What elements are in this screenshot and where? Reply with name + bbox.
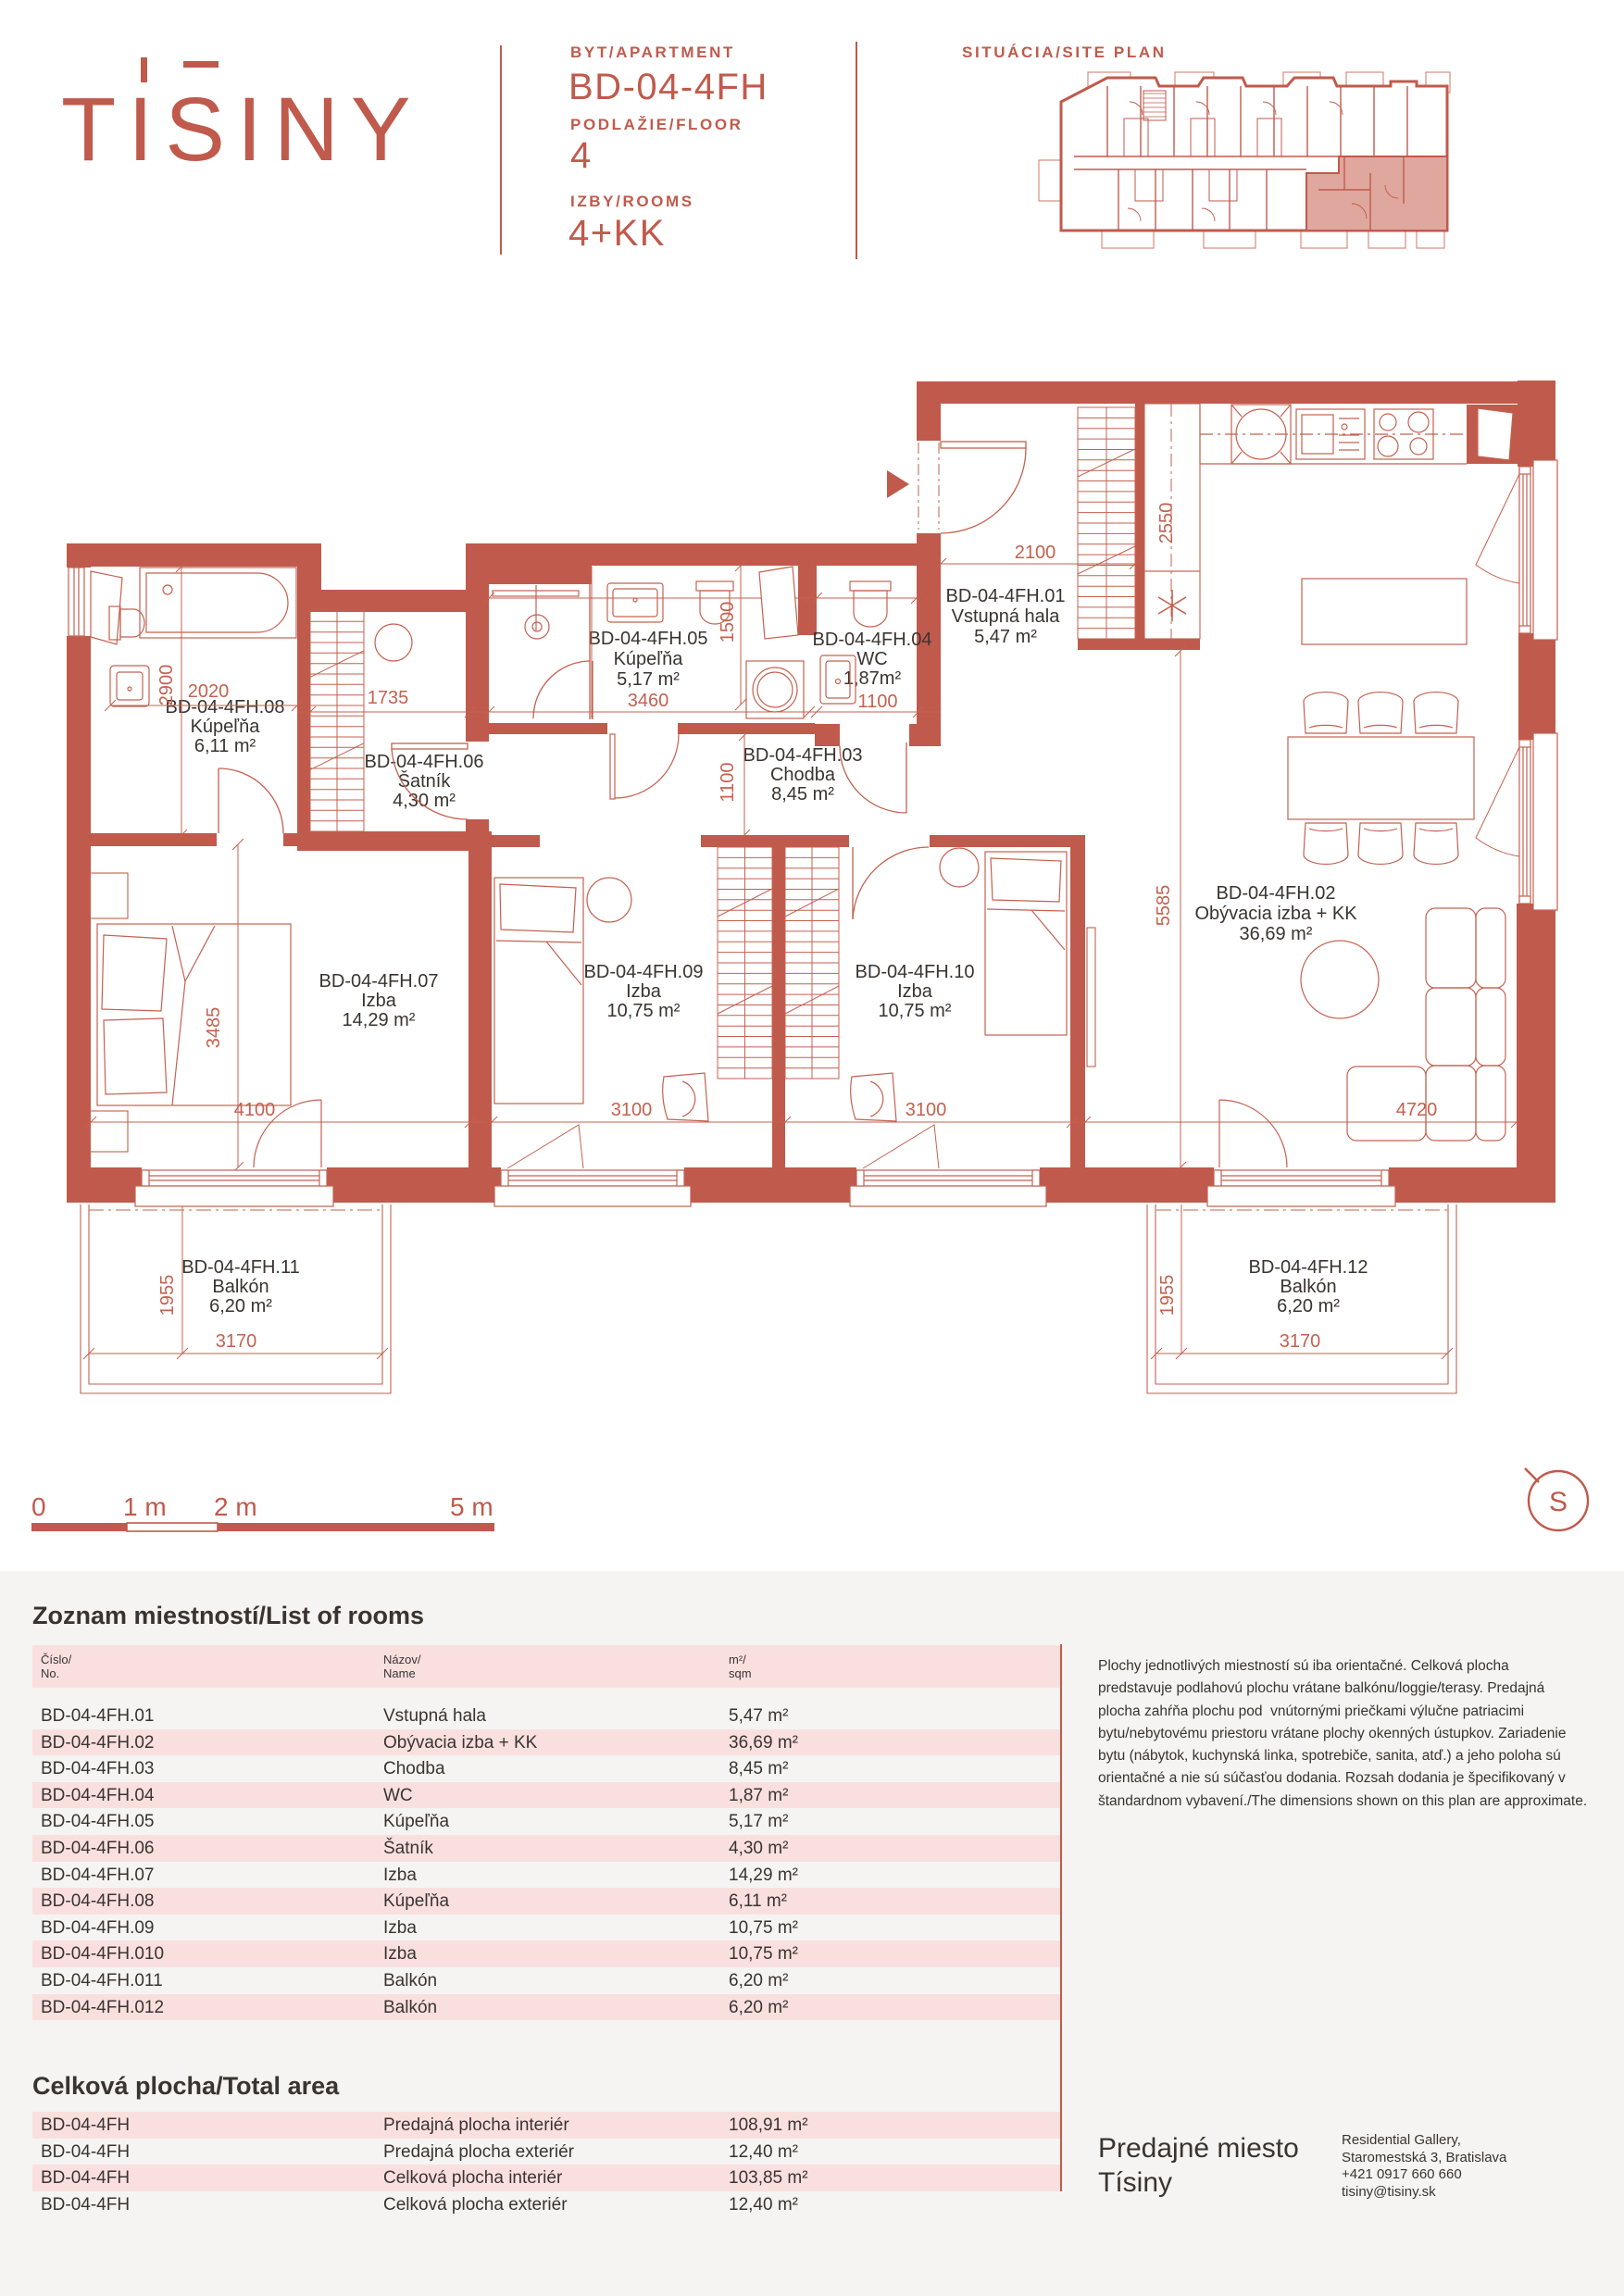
svg-text:3100: 3100 (906, 1100, 947, 1120)
svg-text:1,87m²: 1,87m² (843, 668, 902, 689)
svg-text:3170: 3170 (1280, 1331, 1321, 1352)
svg-text:1 m: 1 m (123, 1492, 167, 1521)
svg-text:Vstupná hala: Vstupná hala (952, 606, 1061, 627)
svg-text:BD-04-4FH.01: BD-04-4FH.01 (946, 586, 1066, 606)
svg-text:1500: 1500 (718, 602, 738, 643)
svg-text:2 m: 2 m (214, 1492, 257, 1521)
svg-text:BD-04-4FH.06: BD-04-4FH.06 (365, 752, 484, 772)
svg-text:1100: 1100 (857, 692, 897, 712)
svg-text:BD-04-4FH.07: BD-04-4FH.07 (319, 971, 439, 992)
svg-text:2020: 2020 (188, 681, 230, 702)
svg-text:4720: 4720 (1396, 1100, 1438, 1120)
svg-text:10,75 m²: 10,75 m² (607, 1001, 681, 1021)
svg-text:14,29 m²: 14,29 m² (343, 1010, 416, 1030)
svg-text:5,17 m²: 5,17 m² (617, 669, 680, 690)
svg-text:1955: 1955 (1157, 1275, 1178, 1316)
svg-text:Izba: Izba (626, 981, 662, 1002)
svg-text:Kúpeľňa: Kúpeľňa (191, 717, 261, 737)
svg-text:1100: 1100 (718, 762, 738, 802)
svg-text:3485: 3485 (204, 1007, 224, 1049)
svg-text:5 m: 5 m (450, 1492, 493, 1521)
svg-text:2550: 2550 (1156, 503, 1177, 544)
svg-text:BD-04-4FH.02: BD-04-4FH.02 (1217, 883, 1336, 904)
svg-text:1955: 1955 (157, 1275, 178, 1316)
svg-text:3100: 3100 (611, 1100, 653, 1120)
svg-text:5,47 m²: 5,47 m² (974, 627, 1037, 647)
svg-text:BD-04-4FH.10: BD-04-4FH.10 (856, 962, 975, 982)
svg-text:5585: 5585 (1154, 885, 1174, 927)
svg-text:4100: 4100 (234, 1100, 276, 1120)
svg-text:Balkón: Balkón (1280, 1277, 1336, 1297)
svg-text:WC: WC (856, 649, 887, 669)
svg-text:10,75 m²: 10,75 m² (879, 1001, 952, 1021)
svg-text:Obývacia izba + KK: Obývacia izba + KK (1194, 904, 1357, 924)
svg-text:3170: 3170 (216, 1331, 257, 1352)
svg-text:3460: 3460 (628, 691, 669, 711)
svg-text:BD-04-4FH.03: BD-04-4FH.03 (743, 745, 863, 766)
svg-text:S: S (1549, 1487, 1568, 1517)
svg-text:BD-04-4FH.05: BD-04-4FH.05 (589, 629, 708, 649)
svg-text:36,69 m²: 36,69 m² (1240, 924, 1313, 944)
svg-text:0: 0 (31, 1492, 46, 1521)
svg-text:Kúpeľňa: Kúpeľňa (614, 649, 684, 669)
svg-text:BD-04-4FH.09: BD-04-4FH.09 (584, 962, 704, 982)
svg-text:BD-04-4FH.12: BD-04-4FH.12 (1249, 1257, 1368, 1278)
svg-text:BD-04-4FH.11: BD-04-4FH.11 (181, 1257, 299, 1278)
svg-text:6,20 m²: 6,20 m² (1277, 1296, 1340, 1316)
svg-text:Balkón: Balkón (212, 1277, 269, 1297)
svg-text:6,20 m²: 6,20 m² (209, 1296, 272, 1316)
svg-text:4,30 m²: 4,30 m² (393, 791, 456, 811)
svg-text:Chodba: Chodba (770, 765, 836, 785)
svg-text:Izba: Izba (897, 981, 933, 1002)
svg-text:BD-04-4FH.04: BD-04-4FH.04 (813, 630, 932, 650)
svg-text:6,11 m²: 6,11 m² (194, 736, 256, 756)
svg-text:8,45 m²: 8,45 m² (771, 784, 834, 805)
svg-text:Izba: Izba (361, 991, 397, 1011)
svg-text:1735: 1735 (368, 688, 409, 708)
svg-text:2900: 2900 (156, 665, 177, 706)
svg-text:2100: 2100 (1015, 543, 1056, 563)
